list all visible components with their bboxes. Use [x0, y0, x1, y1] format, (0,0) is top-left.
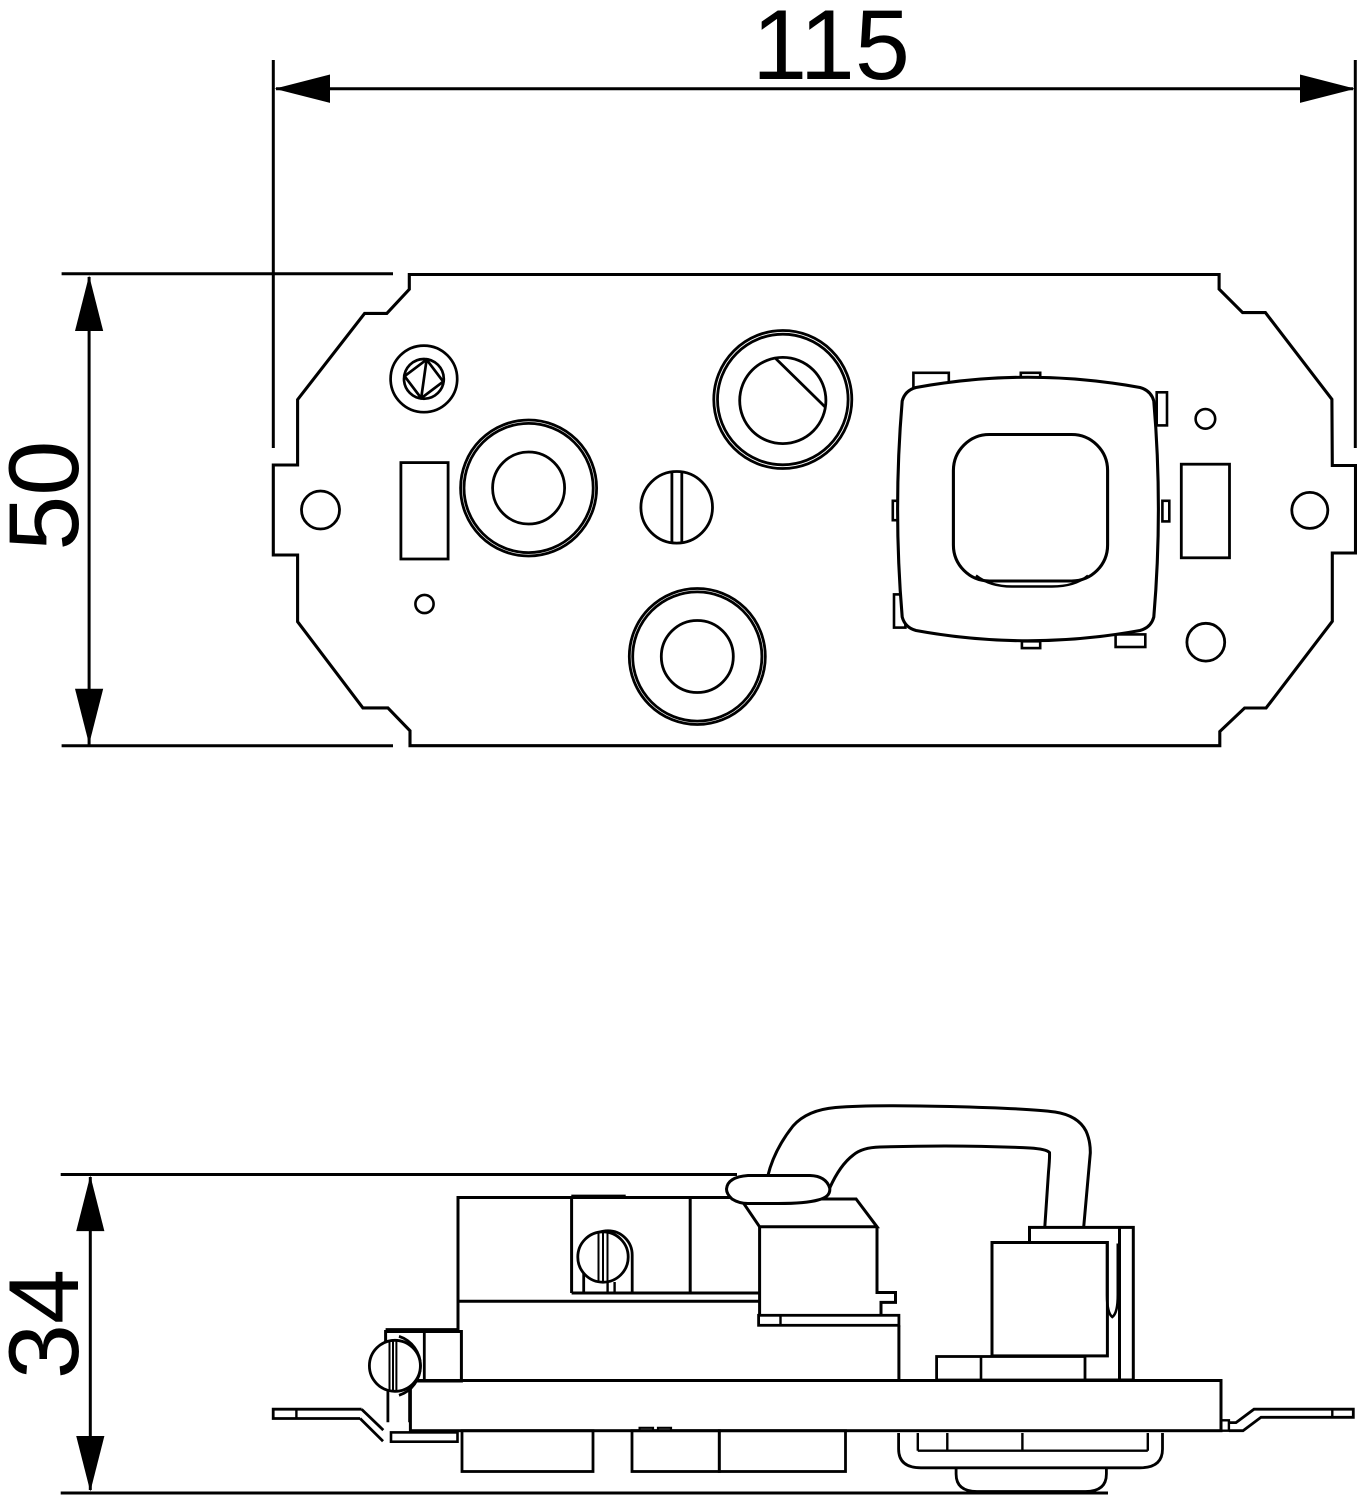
svg-text:115: 115	[752, 0, 910, 100]
svg-text:50: 50	[0, 441, 99, 551]
svg-text:34: 34	[0, 1269, 99, 1379]
